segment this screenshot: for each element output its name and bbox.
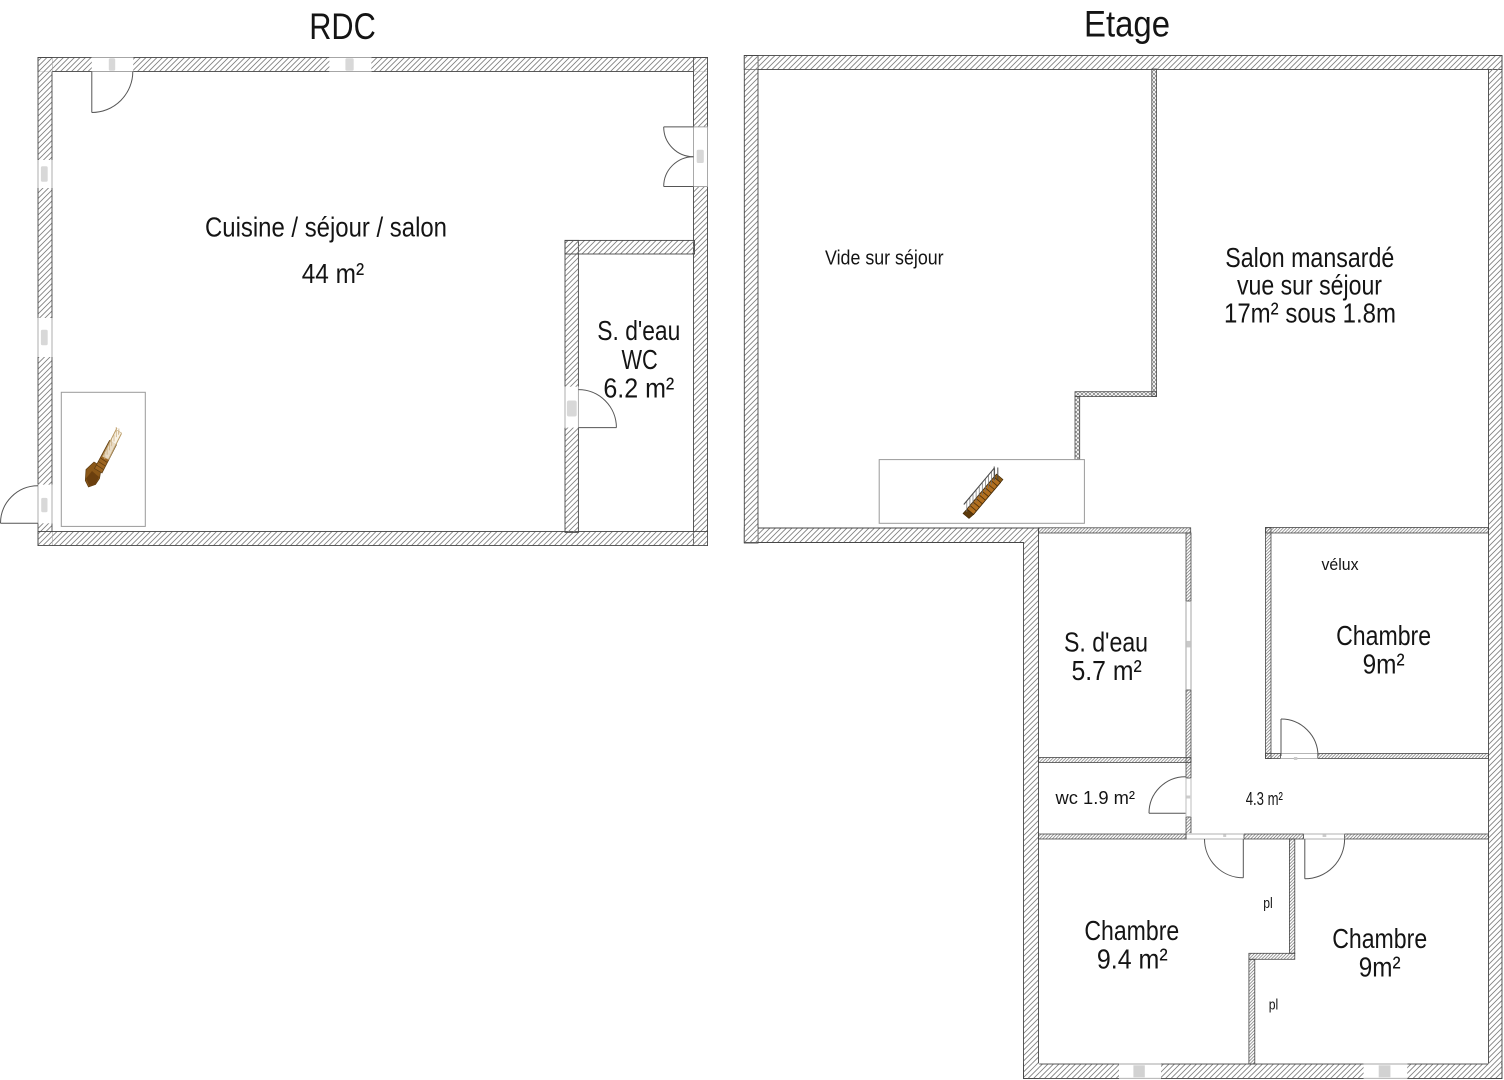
svg-text:S. d'eau: S. d'eau bbox=[1064, 627, 1148, 658]
svg-text:44 m²: 44 m² bbox=[302, 258, 364, 289]
svg-text:WC: WC bbox=[621, 344, 657, 375]
svg-text:Salon mansardé: Salon mansardé bbox=[1225, 242, 1394, 273]
svg-text:vue sur séjour: vue sur séjour bbox=[1237, 270, 1382, 301]
svg-text:pl: pl bbox=[1263, 895, 1273, 912]
svg-text:Cuisine / séjour / salon: Cuisine / séjour / salon bbox=[205, 212, 447, 243]
svg-text:Vide sur séjour: Vide sur séjour bbox=[825, 248, 944, 270]
svg-text:Chambre: Chambre bbox=[1084, 915, 1179, 946]
svg-text:4.3 m²: 4.3 m² bbox=[1246, 788, 1283, 809]
svg-text:wc 1.9 m²: wc 1.9 m² bbox=[1055, 787, 1135, 808]
svg-text:9.4 m²: 9.4 m² bbox=[1097, 943, 1168, 974]
svg-text:17m² sous 1.8m: 17m² sous 1.8m bbox=[1224, 297, 1396, 328]
svg-text:Chambre: Chambre bbox=[1332, 923, 1427, 954]
svg-text:S. d'eau: S. d'eau bbox=[597, 315, 680, 346]
svg-text:5.7 m²: 5.7 m² bbox=[1072, 655, 1142, 686]
svg-text:Etage: Etage bbox=[1084, 4, 1170, 45]
svg-text:9m²: 9m² bbox=[1363, 648, 1405, 679]
svg-text:pl: pl bbox=[1269, 997, 1279, 1014]
svg-text:6.2 m²: 6.2 m² bbox=[603, 372, 674, 403]
svg-text:vélux: vélux bbox=[1322, 555, 1359, 574]
svg-text:9m²: 9m² bbox=[1359, 952, 1401, 983]
svg-text:Chambre: Chambre bbox=[1336, 620, 1431, 651]
svg-text:RDC: RDC bbox=[309, 6, 376, 47]
